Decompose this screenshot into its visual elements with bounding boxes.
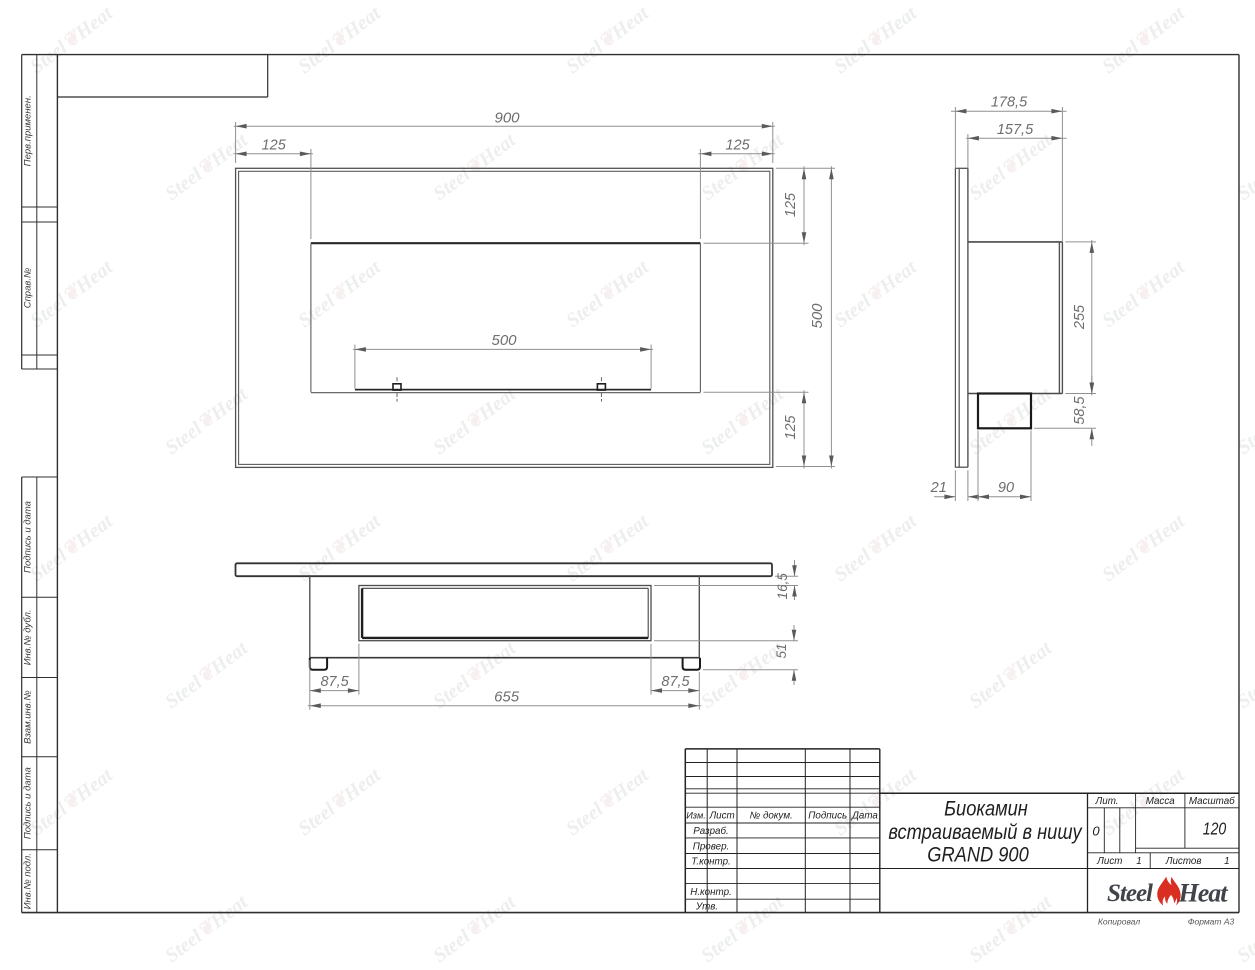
svg-text:Утв.: Утв.	[695, 902, 718, 913]
svg-text:125: 125	[262, 138, 287, 154]
svg-text:0: 0	[1092, 824, 1100, 839]
svg-text:Steel❦Heat: Steel❦Heat	[26, 509, 118, 586]
svg-text:Steel❦Heat: Steel❦Heat	[26, 1, 118, 78]
svg-text:Инв.№ дубл.: Инв.№ дубл.	[23, 610, 34, 666]
svg-text:Steel❦Heat: Steel❦Heat	[562, 1, 654, 78]
svg-text:встраиваемый в нишу: встраиваемый в нишу	[888, 821, 1082, 845]
svg-text:№ докум.: № докум.	[750, 811, 793, 822]
svg-text:Steel❦Heat: Steel❦Heat	[26, 255, 118, 332]
svg-text:120: 120	[1203, 819, 1226, 839]
svg-text:Steel❦Heat: Steel❦Heat	[830, 509, 922, 586]
svg-text:Steel❦Heat: Steel❦Heat	[1098, 1, 1190, 78]
svg-text:87,5: 87,5	[320, 674, 349, 690]
svg-text:Heat: Heat	[1178, 879, 1229, 908]
svg-text:Провер.: Провер.	[693, 841, 730, 852]
svg-text:Масса: Масса	[1146, 796, 1176, 807]
svg-text:Steel❦Heat: Steel❦Heat	[1233, 636, 1255, 713]
svg-text:Подпись и дата: Подпись и дата	[23, 767, 34, 839]
svg-text:Лист: Лист	[1096, 856, 1122, 867]
svg-text:125: 125	[783, 192, 799, 217]
svg-text:500: 500	[491, 332, 517, 349]
svg-text:Steel❦Heat: Steel❦Heat	[830, 1, 922, 78]
svg-text:16,5: 16,5	[775, 573, 790, 600]
svg-text:Копировал: Копировал	[1098, 917, 1140, 927]
svg-text:500: 500	[809, 303, 826, 329]
svg-text:Разраб.: Разраб.	[693, 826, 728, 837]
svg-text:Steel❦Heat: Steel❦Heat	[26, 763, 118, 840]
svg-text:51: 51	[774, 643, 789, 658]
svg-text:Steel❦Heat: Steel❦Heat	[1098, 255, 1190, 332]
svg-text:87,5: 87,5	[661, 674, 690, 690]
svg-text:Изм.: Изм.	[686, 810, 706, 820]
svg-text:Справ.№: Справ.№	[23, 268, 34, 309]
svg-text:Steel❦Heat: Steel❦Heat	[562, 509, 654, 586]
svg-text:Steel❦Heat: Steel❦Heat	[429, 890, 521, 967]
svg-text:Н.контр.: Н.контр.	[690, 887, 731, 898]
svg-text:Steel❦Heat: Steel❦Heat	[161, 636, 253, 713]
svg-text:Steel❦Heat: Steel❦Heat	[429, 382, 521, 459]
svg-text:21: 21	[930, 480, 947, 496]
svg-text:Steel❦Heat: Steel❦Heat	[294, 255, 386, 332]
svg-text:125: 125	[783, 414, 799, 439]
svg-text:Steel❦Heat: Steel❦Heat	[1233, 890, 1255, 967]
svg-text:Лист: Лист	[708, 811, 734, 822]
svg-text:Лит.: Лит.	[1095, 796, 1119, 807]
svg-text:Т.контр.: Т.контр.	[691, 856, 731, 867]
svg-text:1: 1	[1224, 856, 1229, 867]
svg-text:Взам.инв.№: Взам.инв.№	[23, 690, 34, 743]
svg-text:655: 655	[494, 689, 520, 706]
svg-text:Steel❦Heat: Steel❦Heat	[429, 128, 521, 205]
svg-text:157,5: 157,5	[997, 122, 1034, 138]
svg-text:Формат А3: Формат А3	[1188, 917, 1235, 927]
svg-text:Подпись: Подпись	[808, 811, 847, 822]
svg-text:Масштаб: Масштаб	[1189, 796, 1235, 807]
svg-text:Дата: Дата	[851, 811, 878, 822]
svg-text:Steel❦Heat: Steel❦Heat	[697, 382, 789, 459]
svg-text:178,5: 178,5	[991, 95, 1028, 111]
svg-text:Steel❦Heat: Steel❦Heat	[965, 636, 1057, 713]
svg-text:125: 125	[725, 138, 750, 154]
svg-text:900: 900	[494, 109, 520, 126]
svg-text:58,5: 58,5	[1072, 395, 1088, 424]
svg-text:Steel❦Heat: Steel❦Heat	[965, 890, 1057, 967]
svg-text:Steel❦Heat: Steel❦Heat	[294, 509, 386, 586]
svg-text:255: 255	[1072, 304, 1088, 330]
svg-text:Перв.применен.: Перв.применен.	[23, 95, 34, 166]
svg-text:90: 90	[998, 480, 1014, 496]
svg-text:Steel❦Heat: Steel❦Heat	[161, 890, 253, 967]
svg-text:Подпись и дата: Подпись и дата	[23, 501, 34, 573]
svg-text:Steel❦Heat: Steel❦Heat	[1233, 128, 1255, 205]
svg-text:Биокамин: Биокамин	[944, 797, 1028, 821]
svg-text:Steel❦Heat: Steel❦Heat	[294, 1, 386, 78]
svg-text:Инв.№ подл.: Инв.№ подл.	[23, 853, 34, 909]
svg-text:1: 1	[1136, 856, 1141, 867]
svg-text:Steel❦Heat: Steel❦Heat	[562, 763, 654, 840]
svg-text:Steel: Steel	[1107, 880, 1153, 907]
svg-text:Steel❦Heat: Steel❦Heat	[1098, 509, 1190, 586]
svg-text:Steel❦Heat: Steel❦Heat	[562, 255, 654, 332]
svg-text:Steel❦Heat: Steel❦Heat	[294, 763, 386, 840]
svg-text:GRAND 900: GRAND 900	[927, 843, 1028, 867]
svg-text:Steel❦Heat: Steel❦Heat	[1233, 382, 1255, 459]
svg-text:Листов: Листов	[1165, 856, 1202, 867]
svg-text:Steel❦Heat: Steel❦Heat	[830, 255, 922, 332]
